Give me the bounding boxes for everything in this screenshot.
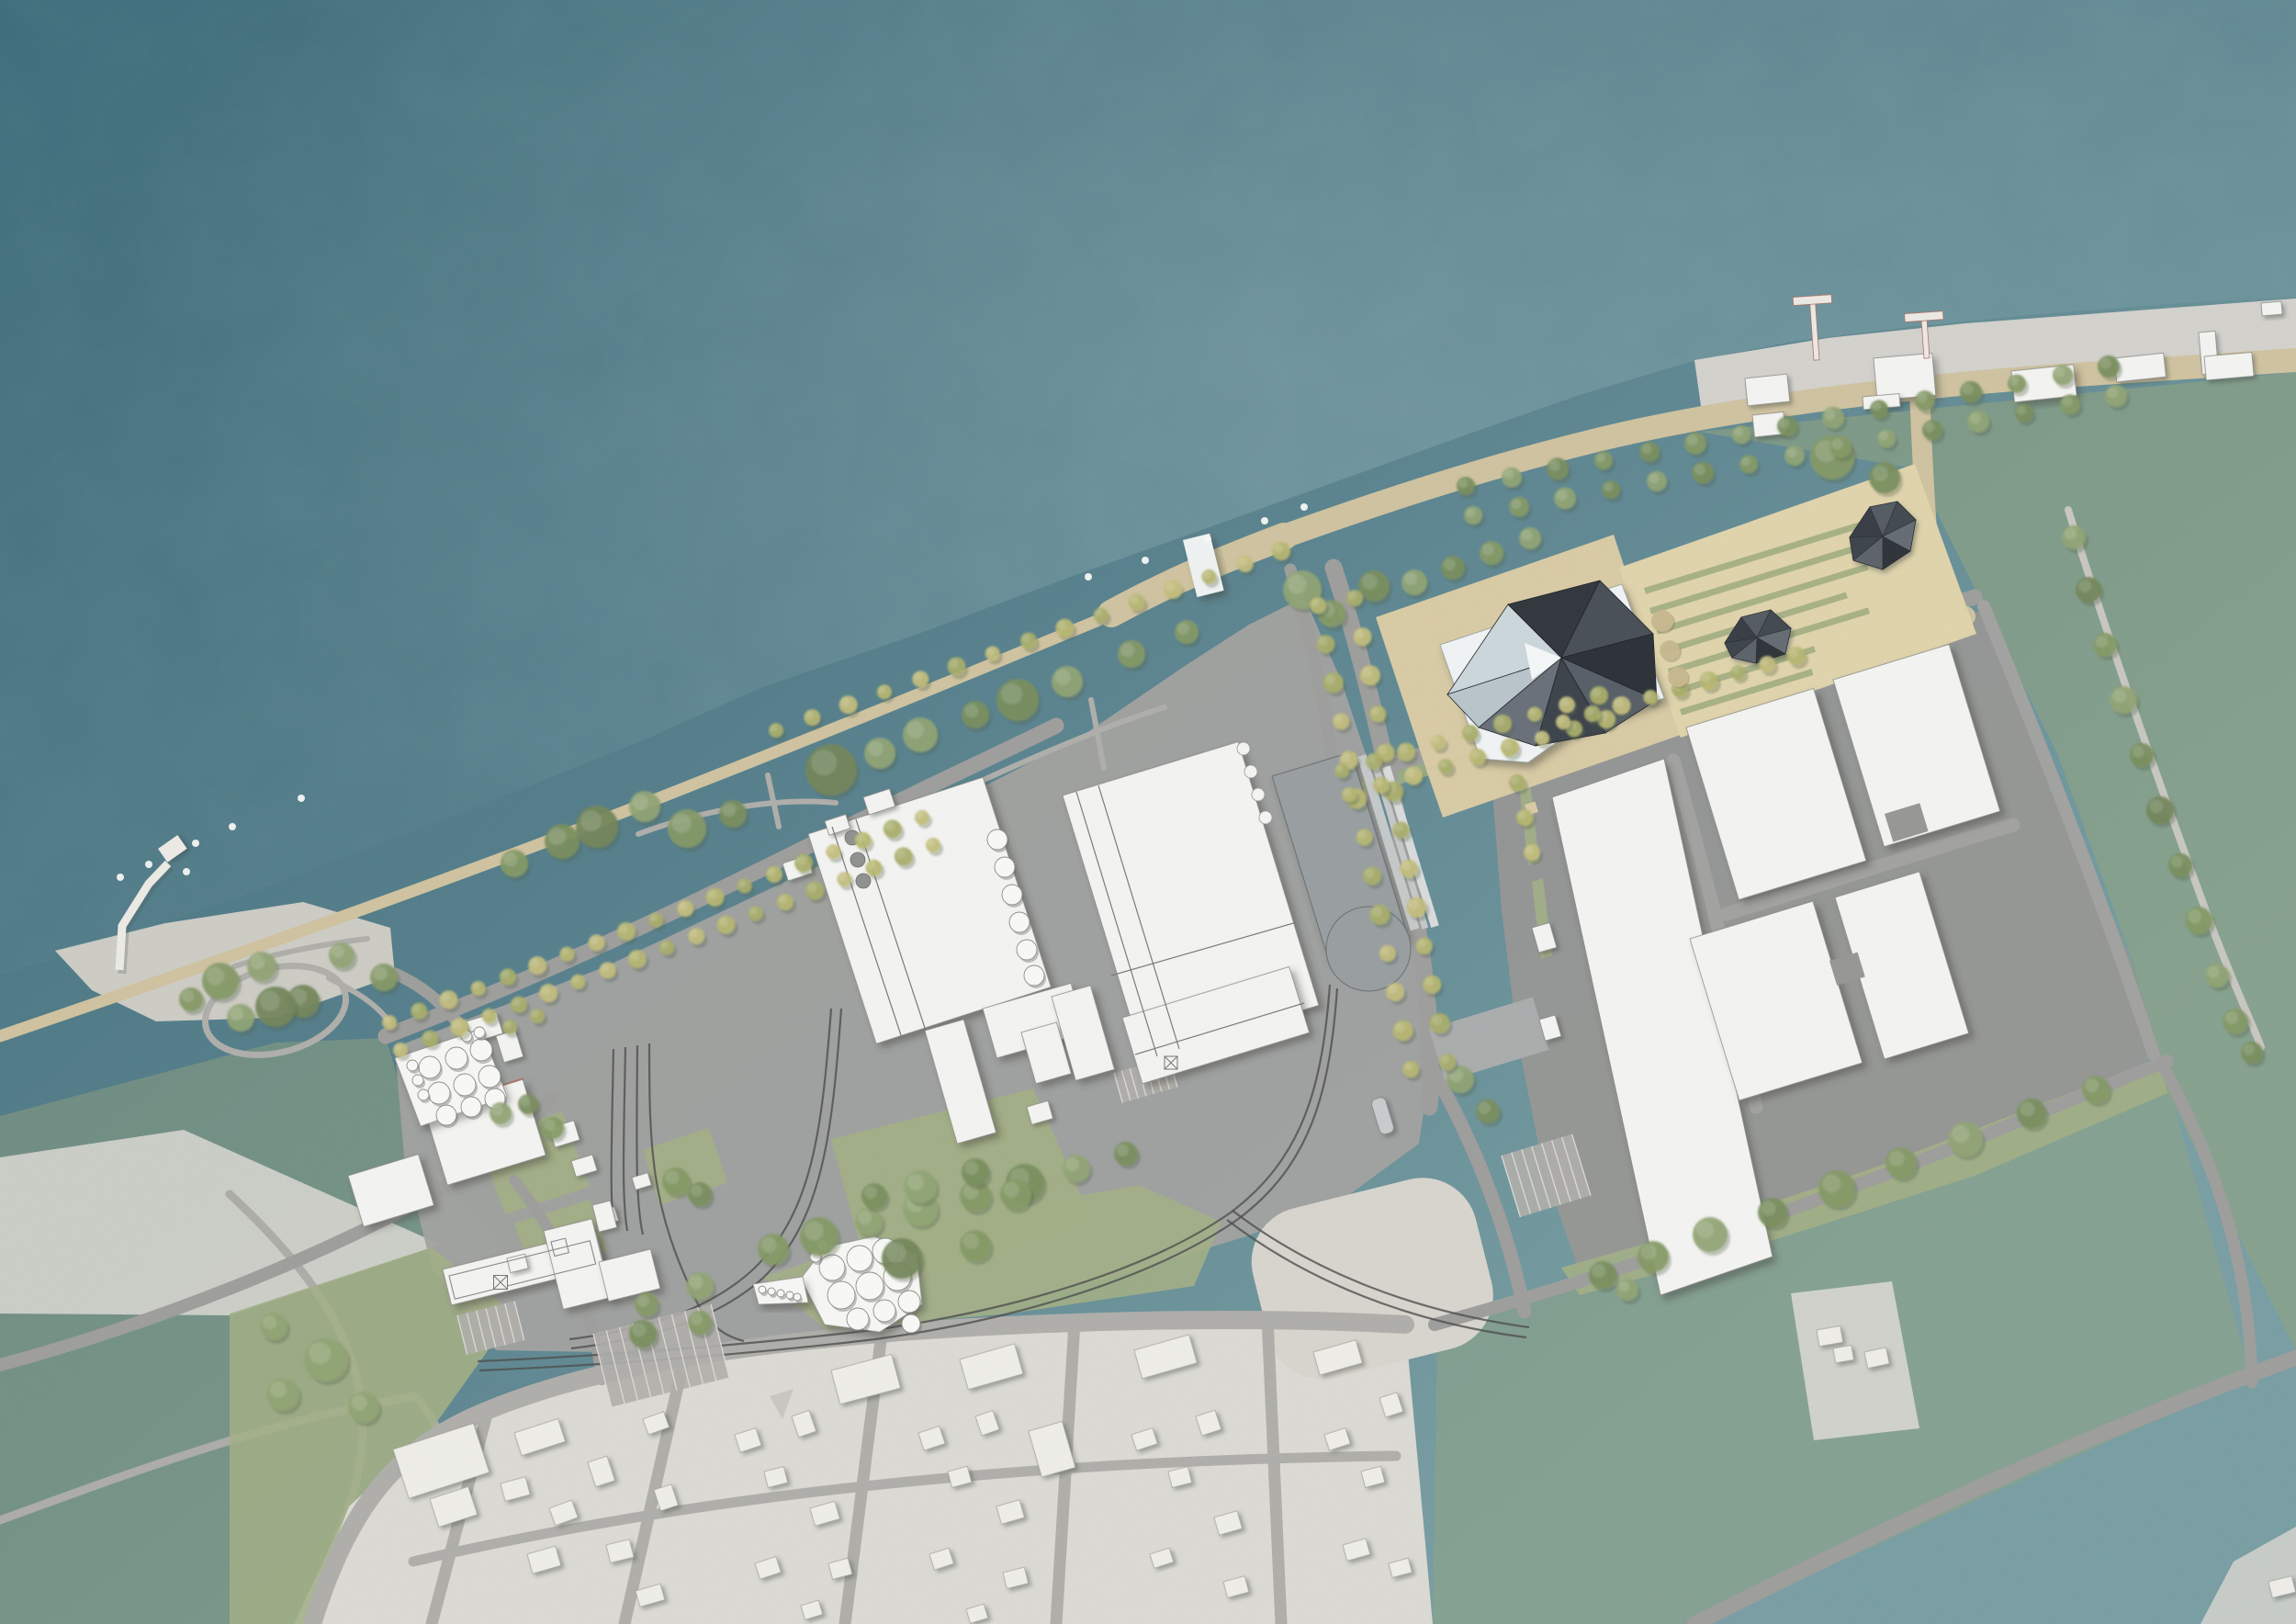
overall-grain-texture: [0, 0, 2296, 1624]
masterplan-svg: [0, 0, 2296, 1624]
site-plan-rendering: [0, 0, 2296, 1624]
